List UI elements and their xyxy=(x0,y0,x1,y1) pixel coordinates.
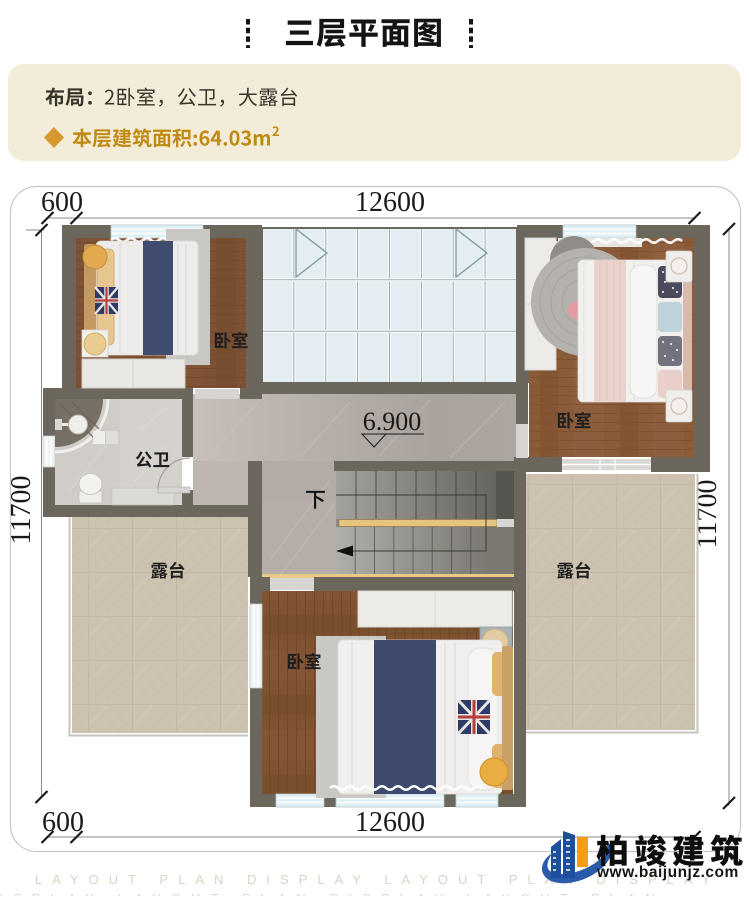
svg-text:12600: 12600 xyxy=(355,187,425,218)
svg-text:DISPLAY LAYOUT PLAN DISPLAY LA: DISPLAY LAYOUT PLAN DISPLAY LAYOUT PLAN xyxy=(0,891,665,896)
svg-text:600: 600 xyxy=(42,807,84,838)
svg-text:www.baijunjz.com: www.baijunjz.com xyxy=(596,864,739,881)
svg-text:600: 600 xyxy=(41,187,83,218)
svg-text:12600: 12600 xyxy=(355,807,425,838)
svg-text:11700: 11700 xyxy=(6,476,37,545)
svg-text:6.900: 6.900 xyxy=(363,407,422,436)
